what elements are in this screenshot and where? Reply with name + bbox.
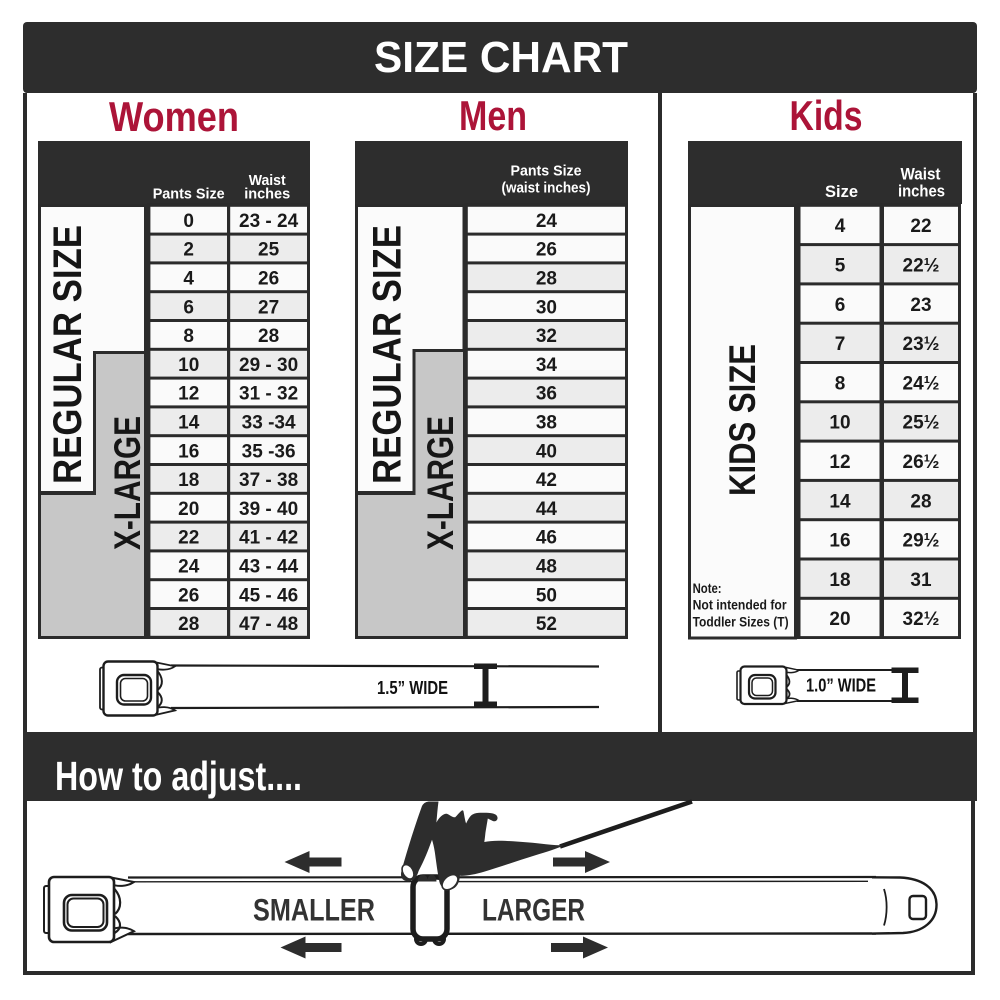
svg-text:28: 28 [178,614,199,635]
svg-text:25½: 25½ [903,413,940,434]
svg-text:0: 0 [183,211,194,232]
svg-text:18: 18 [178,470,199,491]
svg-text:29 - 30: 29 - 30 [239,355,298,376]
svg-text:32½: 32½ [903,609,940,630]
svg-text:50: 50 [536,585,557,606]
svg-text:40: 40 [536,441,557,462]
svg-text:LARGER: LARGER [482,891,585,927]
svg-text:How to adjust....: How to adjust.... [55,753,302,799]
svg-text:24: 24 [178,557,200,578]
svg-text:48: 48 [536,557,557,578]
svg-text:12: 12 [829,452,850,473]
svg-text:30: 30 [536,297,557,318]
svg-text:X-LARGE: X-LARGE [420,416,461,550]
svg-text:43 - 44: 43 - 44 [239,557,299,578]
svg-text:31 - 32: 31 - 32 [239,384,298,405]
svg-text:Size: Size [825,183,858,201]
svg-text:42: 42 [536,470,557,491]
svg-text:26: 26 [536,240,557,261]
svg-text:31: 31 [910,570,932,591]
svg-text:Women: Women [109,93,239,140]
svg-text:35 -36: 35 -36 [242,441,296,462]
svg-text:8: 8 [183,326,194,347]
svg-text:7: 7 [835,334,846,355]
svg-text:SIZE CHART: SIZE CHART [374,33,628,82]
svg-text:X-LARGE: X-LARGE [107,416,148,550]
svg-text:Waist: Waist [901,166,941,184]
svg-text:39 - 40: 39 - 40 [239,499,298,520]
svg-text:24: 24 [536,211,558,232]
svg-text:14: 14 [178,413,200,434]
svg-text:23½: 23½ [903,334,940,355]
svg-text:14: 14 [829,491,851,512]
svg-text:10: 10 [178,355,199,376]
svg-text:4: 4 [835,216,846,237]
svg-text:inches: inches [898,183,945,201]
svg-text:23 - 24: 23 - 24 [239,211,299,232]
svg-text:26: 26 [258,269,279,290]
svg-text:36: 36 [536,384,557,405]
svg-text:KIDS SIZE: KIDS SIZE [722,344,763,496]
svg-text:28: 28 [536,269,557,290]
svg-text:1.0” WIDE: 1.0” WIDE [806,675,876,696]
svg-text:Pants Size: Pants Size [153,186,225,203]
svg-text:Men: Men [459,92,527,139]
svg-text:REGULAR SIZE: REGULAR SIZE [366,225,410,484]
svg-text:22: 22 [910,216,931,237]
svg-text:16: 16 [829,531,850,552]
svg-text:Kids: Kids [790,92,863,139]
svg-text:34: 34 [536,355,558,376]
svg-text:22½: 22½ [903,256,940,277]
svg-text:20: 20 [829,609,850,630]
svg-text:10: 10 [829,413,850,434]
svg-text:6: 6 [183,297,194,318]
svg-text:(waist inches): (waist inches) [502,180,591,197]
svg-text:8: 8 [835,373,846,394]
svg-text:1.5” WIDE: 1.5” WIDE [377,677,448,698]
svg-text:27: 27 [258,297,279,318]
svg-text:52: 52 [536,614,557,635]
svg-text:38: 38 [536,413,557,434]
svg-text:18: 18 [829,570,850,591]
svg-text:25: 25 [258,240,280,261]
svg-text:26½: 26½ [903,452,940,473]
svg-text:inches: inches [244,186,290,203]
svg-text:45 - 46: 45 - 46 [239,585,298,606]
svg-text:33 -34: 33 -34 [242,413,296,434]
svg-text:Note:: Note: [693,581,722,596]
svg-text:22: 22 [178,528,199,549]
svg-text:23: 23 [910,295,931,316]
svg-text:2: 2 [183,240,194,261]
svg-text:4: 4 [183,269,194,290]
svg-text:16: 16 [178,441,199,462]
svg-text:32: 32 [536,326,557,347]
svg-text:Toddler Sizes (T): Toddler Sizes (T) [693,614,789,629]
svg-text:6: 6 [835,295,846,316]
svg-text:5: 5 [835,256,846,277]
svg-text:37 - 38: 37 - 38 [239,470,298,491]
svg-text:41 - 42: 41 - 42 [239,528,298,549]
svg-text:28: 28 [258,326,279,347]
svg-text:47 - 48: 47 - 48 [239,614,298,635]
svg-text:Not intended for: Not intended for [693,598,788,613]
svg-text:46: 46 [536,528,557,549]
svg-text:26: 26 [178,585,199,606]
svg-text:44: 44 [536,499,558,520]
svg-text:29½: 29½ [903,531,940,552]
svg-text:20: 20 [178,499,199,520]
svg-text:24½: 24½ [903,373,940,394]
svg-text:Pants Size: Pants Size [511,163,582,180]
svg-text:12: 12 [178,384,199,405]
svg-text:28: 28 [910,491,931,512]
svg-text:SMALLER: SMALLER [253,891,375,927]
svg-text:REGULAR SIZE: REGULAR SIZE [46,225,90,484]
